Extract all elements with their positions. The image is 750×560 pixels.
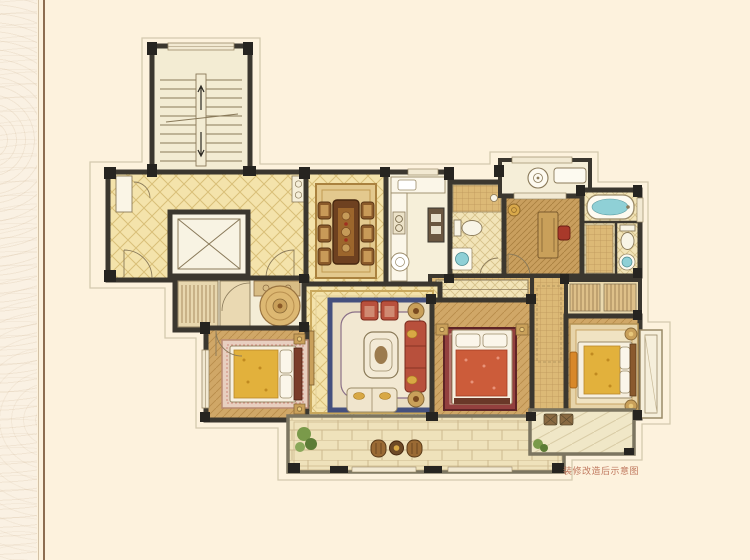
bed-icon xyxy=(230,346,302,402)
room-bedroom-left xyxy=(202,328,308,420)
bay-window xyxy=(640,330,662,418)
room-study xyxy=(504,193,582,276)
dining-table-icon xyxy=(333,200,359,264)
room-foyer xyxy=(175,278,307,330)
floorplan-page: { "caption": { "text": "装修改造后示意图", "colo… xyxy=(0,0,750,560)
balcony-railing-window xyxy=(448,467,512,472)
room-master-bedroom xyxy=(566,316,640,421)
room-guest-bath xyxy=(450,182,504,276)
caption: 装修改造后示意图 xyxy=(563,464,639,477)
balcony-table-icon xyxy=(390,441,404,455)
room-elevator-lobby xyxy=(108,172,306,280)
study-window xyxy=(514,193,566,199)
bathtub-icon xyxy=(587,195,634,219)
coffee-table-icon xyxy=(364,332,398,378)
loveseat-icon xyxy=(347,388,397,412)
room-kitchen xyxy=(386,169,450,288)
sofa-icon xyxy=(405,321,426,392)
water-heater-icon xyxy=(391,253,409,271)
room-balcony-main xyxy=(288,416,564,472)
room-bedroom-red xyxy=(432,300,532,418)
room-balcony-rear xyxy=(530,410,634,454)
washing-machine-icon xyxy=(528,168,548,188)
master-bath-window xyxy=(637,198,643,222)
round-rug-icon xyxy=(260,286,300,326)
kitchen-sink-icon xyxy=(398,180,416,190)
desk-icon xyxy=(538,212,558,258)
room-dining xyxy=(306,172,386,288)
desk-chair-icon xyxy=(558,226,570,240)
closet-master-walkin xyxy=(566,280,640,316)
kitchen-window xyxy=(408,169,438,175)
laundry-window xyxy=(512,157,572,163)
toilet-icon xyxy=(454,220,482,236)
room-living xyxy=(304,284,440,420)
sink-icon xyxy=(619,254,635,270)
bed-icon xyxy=(452,330,512,404)
stool-icon xyxy=(508,204,520,216)
sink-icon xyxy=(452,248,472,270)
lobby-cabinet xyxy=(116,176,132,212)
balcony-railing-window xyxy=(352,467,416,472)
toilet-icon xyxy=(620,225,635,250)
bed-icon xyxy=(570,342,636,398)
wardrobe-icon xyxy=(178,281,218,327)
room-stairwell xyxy=(152,43,250,178)
shower-area xyxy=(586,225,613,273)
foyer-cabinet xyxy=(220,281,250,327)
laundry-counter xyxy=(554,168,586,183)
room-master-bath xyxy=(582,190,643,276)
fridge-icon xyxy=(428,208,444,242)
